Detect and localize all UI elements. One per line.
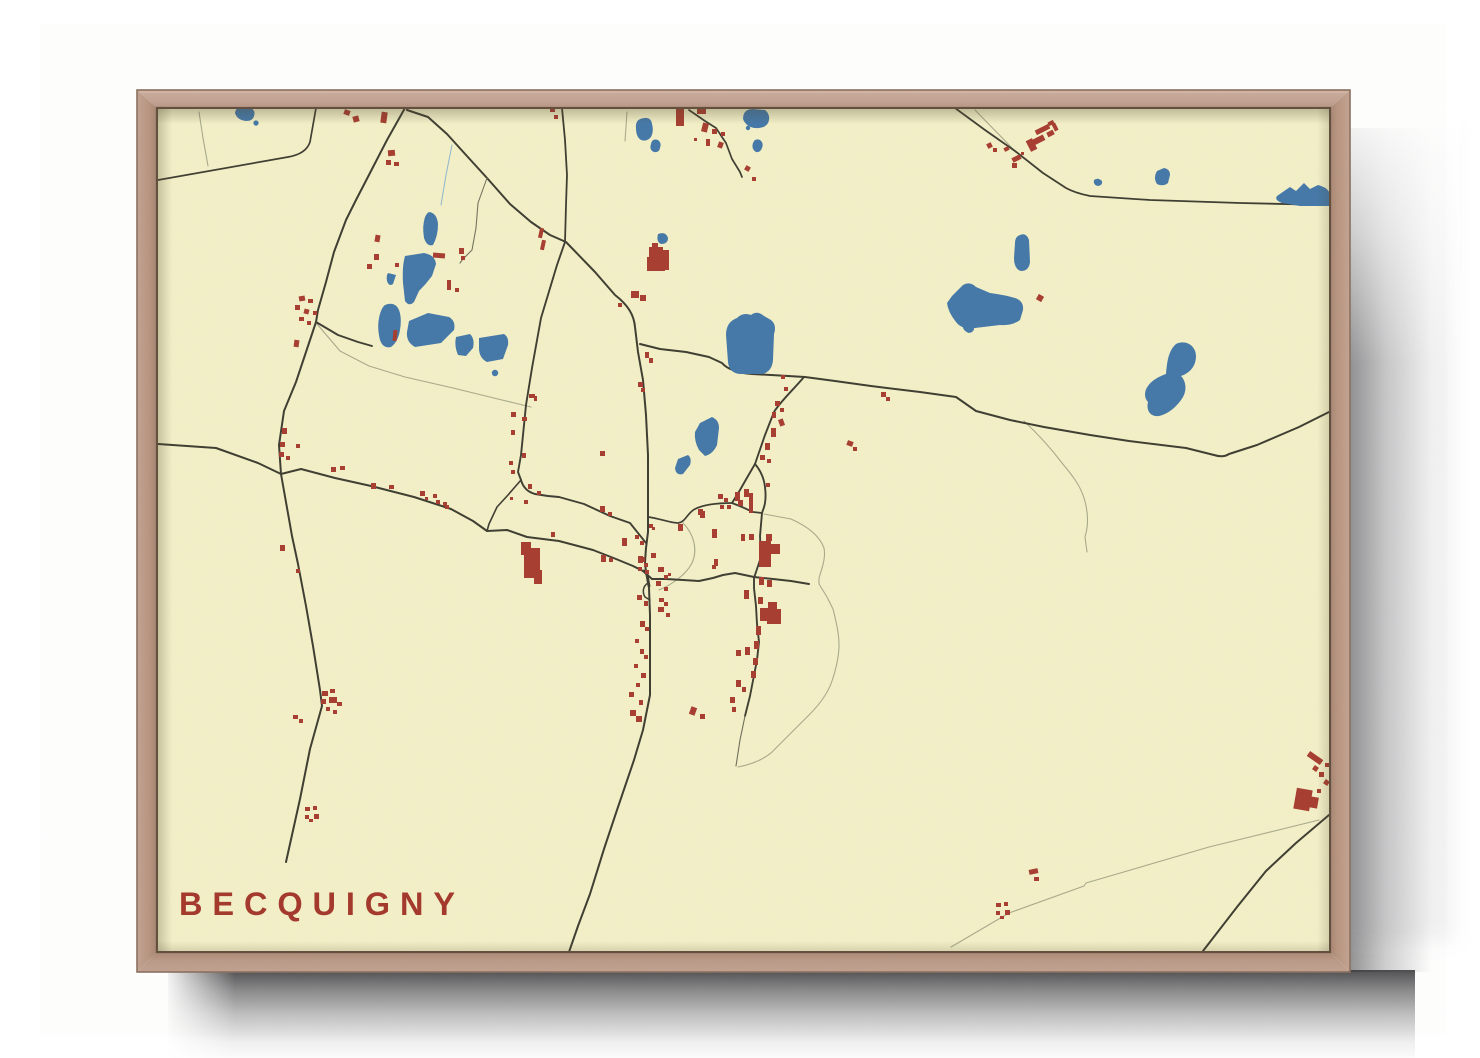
svg-text:BECQUIGNY: BECQUIGNY — [179, 886, 465, 922]
